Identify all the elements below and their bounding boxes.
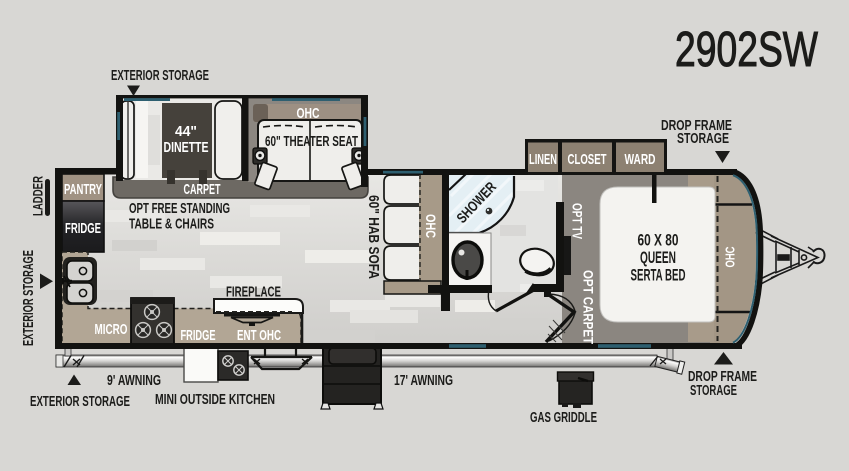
svg-text:DINETTE: DINETTE — [164, 139, 209, 156]
svg-text:STORAGE: STORAGE — [690, 383, 737, 399]
svg-text:2902SW: 2902SW — [675, 23, 819, 77]
svg-text:EXTERIOR STORAGE: EXTERIOR STORAGE — [30, 394, 130, 410]
svg-text:60 X 80: 60 X 80 — [638, 232, 679, 250]
svg-text:GAS GRIDDLE: GAS GRIDDLE — [530, 410, 597, 426]
svg-text:OPT FREE STANDING: OPT FREE STANDING — [129, 200, 230, 217]
svg-text:STORAGE: STORAGE — [677, 131, 729, 147]
svg-text:FIREPLACE: FIREPLACE — [226, 285, 281, 301]
svg-text:LINEN: LINEN — [529, 151, 557, 168]
svg-text:17' AWNING: 17' AWNING — [394, 373, 453, 389]
svg-text:MICRO: MICRO — [95, 322, 128, 338]
svg-text:PANTRY: PANTRY — [64, 181, 102, 198]
svg-text:SERTA BED: SERTA BED — [631, 267, 686, 285]
svg-text:60" THEATER SEAT: 60" THEATER SEAT — [265, 133, 358, 150]
svg-text:OPT TV: OPT TV — [570, 203, 585, 239]
svg-text:ENT OHC: ENT OHC — [237, 328, 281, 344]
svg-text:EXTERIOR STORAGE: EXTERIOR STORAGE — [21, 250, 37, 346]
svg-text:MINI OUTSIDE KITCHEN: MINI OUTSIDE KITCHEN — [155, 392, 275, 408]
svg-text:CLOSET: CLOSET — [568, 151, 607, 168]
svg-text:60" HAB SOFA: 60" HAB SOFA — [365, 195, 381, 279]
svg-text:9' AWNING: 9' AWNING — [107, 373, 161, 389]
svg-text:44": 44" — [175, 123, 197, 140]
svg-text:OHC: OHC — [423, 214, 439, 238]
svg-text:EXTERIOR STORAGE: EXTERIOR STORAGE — [111, 67, 209, 84]
svg-text:TABLE & CHAIRS: TABLE & CHAIRS — [129, 216, 214, 233]
svg-text:LADDER: LADDER — [31, 176, 46, 216]
svg-text:QUEEN: QUEEN — [640, 249, 676, 267]
svg-text:FRIDGE: FRIDGE — [181, 328, 216, 344]
svg-text:OHC: OHC — [723, 246, 738, 267]
svg-text:CARPET: CARPET — [184, 181, 221, 198]
svg-text:OHC: OHC — [297, 106, 320, 122]
svg-text:OPT CARPET: OPT CARPET — [581, 270, 596, 345]
svg-text:FRIDGE: FRIDGE — [65, 220, 101, 237]
svg-text:WARD: WARD — [625, 151, 656, 168]
